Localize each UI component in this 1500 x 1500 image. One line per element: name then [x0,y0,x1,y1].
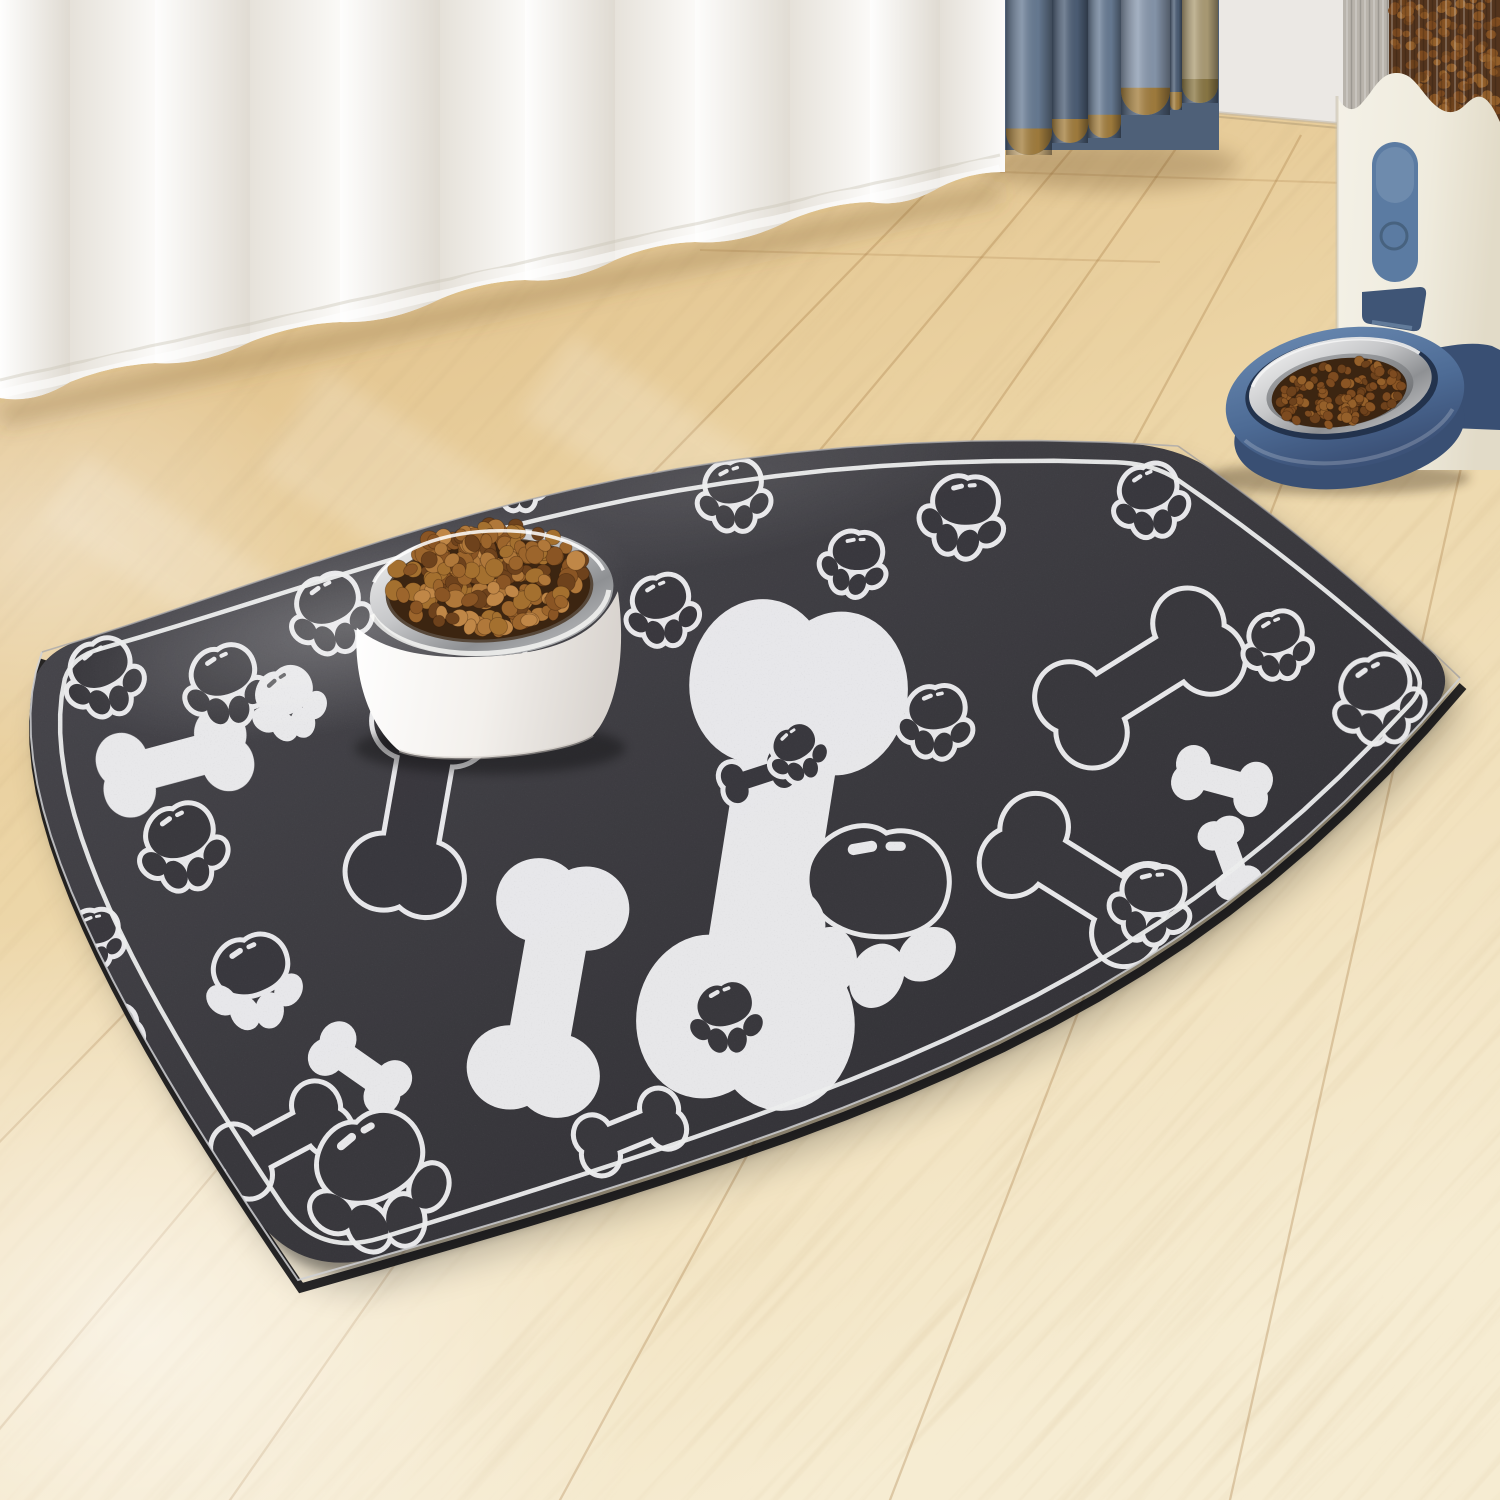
blue-curtain [1003,0,1219,155]
product-photo [0,0,1500,1500]
scene-canvas [0,0,1500,1500]
